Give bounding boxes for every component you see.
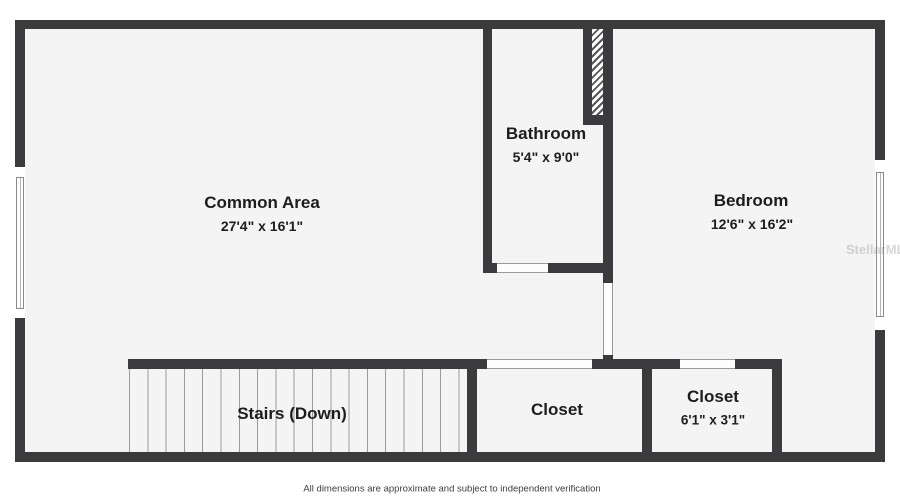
wall-outer-bottom <box>15 452 885 462</box>
label-common-area-name: Common Area <box>204 193 320 213</box>
label-closet-left: Closet <box>531 400 583 420</box>
hatch-shaft <box>592 29 603 115</box>
wall-closet-right-east <box>772 359 782 452</box>
label-bedroom-name: Bedroom <box>714 191 789 211</box>
wall-bathroom-south-left <box>483 263 497 273</box>
door-bedroom <box>603 283 613 355</box>
door-closet-right <box>680 359 735 369</box>
shaft-west-border <box>583 29 592 115</box>
label-common-area-dims: 27'4" x 16'1" <box>221 218 303 234</box>
wall-bedroom-west-upper <box>603 29 613 283</box>
window-left-frame <box>16 177 24 309</box>
label-closet-right-dims: 6'1" x 3'1" <box>681 413 745 428</box>
wall-closet-divider <box>642 359 652 452</box>
wall-closets-top-b <box>592 359 680 369</box>
wall-stairs-east <box>467 359 477 462</box>
door-closet-left <box>487 359 592 369</box>
wall-outer-left-lower <box>15 318 25 452</box>
floorplan-canvas: Common Area 27'4" x 16'1" Bathroom 5'4" … <box>0 0 900 500</box>
footer-disclaimer: All dimensions are approximate and subje… <box>303 484 600 495</box>
label-bathroom-dims: 5'4" x 9'0" <box>513 149 580 165</box>
wall-outer-right-upper <box>875 20 885 160</box>
label-bathroom-name: Bathroom <box>506 124 586 144</box>
wall-outer-top <box>15 20 885 29</box>
wall-stairs-north <box>128 359 477 369</box>
label-stairs: Stairs (Down) <box>237 404 347 424</box>
label-closet-right-name: Closet <box>687 387 739 407</box>
door-bathroom <box>497 263 548 273</box>
wall-bathroom-west <box>483 29 492 263</box>
watermark: StellarMLS <box>846 242 900 257</box>
label-bedroom-dims: 12'6" x 16'2" <box>711 216 793 232</box>
wall-outer-left-upper <box>15 20 25 167</box>
wall-closets-top-a <box>477 359 487 369</box>
wall-outer-right-lower <box>875 330 885 452</box>
